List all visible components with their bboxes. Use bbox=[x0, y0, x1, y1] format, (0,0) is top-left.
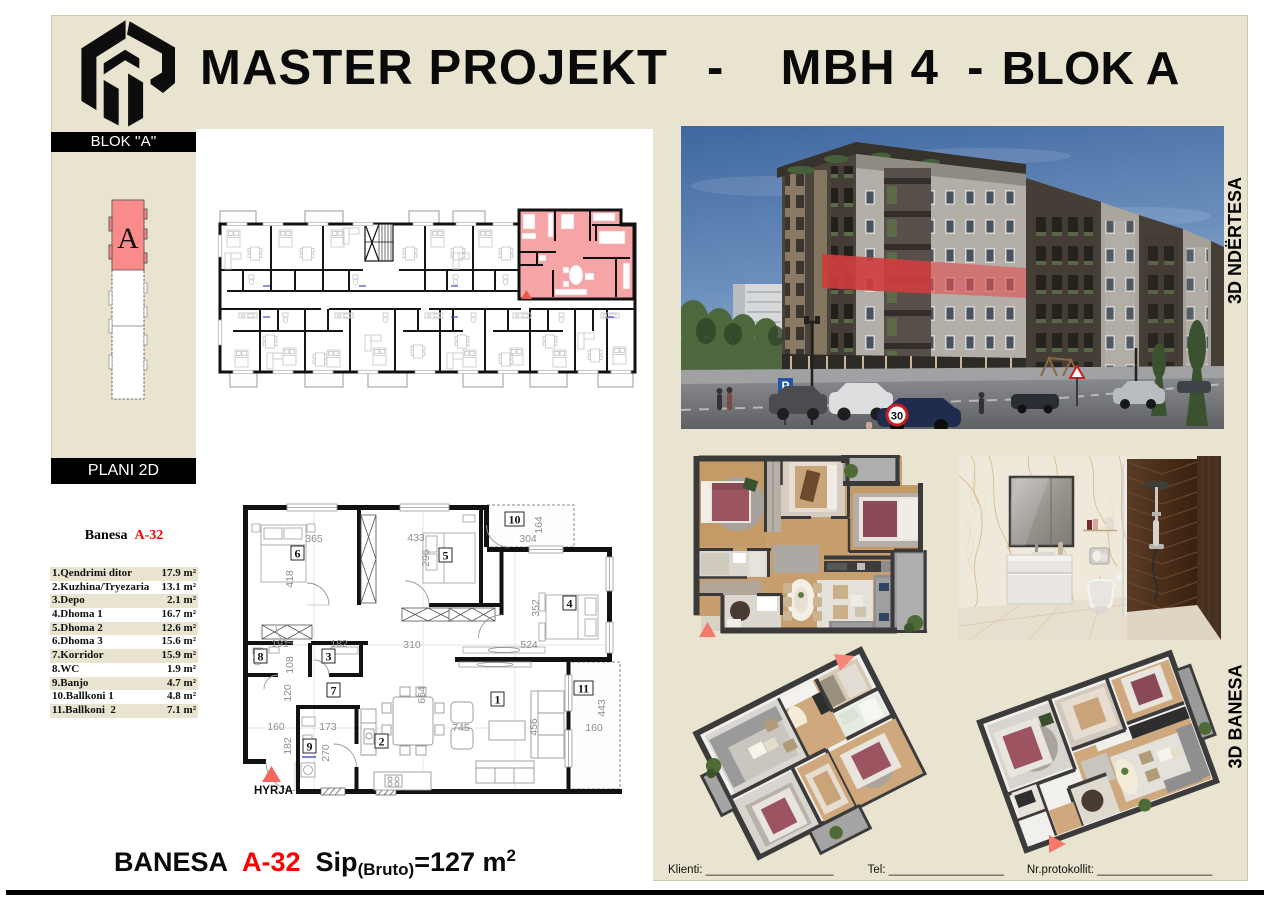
svg-text:433: 433 bbox=[407, 532, 425, 544]
svg-text:4: 4 bbox=[567, 597, 573, 611]
svg-text:296: 296 bbox=[420, 549, 432, 567]
svg-text:664: 664 bbox=[416, 686, 428, 704]
svg-text:6: 6 bbox=[295, 547, 301, 561]
svg-text:443: 443 bbox=[596, 699, 608, 717]
svg-text:160: 160 bbox=[267, 721, 285, 733]
svg-text:456: 456 bbox=[528, 718, 540, 736]
svg-text:5: 5 bbox=[443, 549, 449, 563]
svg-text:8: 8 bbox=[258, 650, 264, 664]
svg-text:304: 304 bbox=[519, 533, 537, 545]
svg-text:164: 164 bbox=[533, 516, 545, 534]
svg-text:11: 11 bbox=[578, 682, 589, 696]
svg-text:9: 9 bbox=[307, 740, 313, 754]
svg-text:270: 270 bbox=[320, 744, 332, 762]
svg-text:365: 365 bbox=[305, 533, 323, 545]
svg-text:182: 182 bbox=[330, 638, 348, 650]
svg-text:30: 30 bbox=[891, 411, 903, 423]
svg-text:2: 2 bbox=[379, 735, 385, 749]
svg-text:173: 173 bbox=[319, 721, 337, 733]
svg-text:160: 160 bbox=[585, 722, 603, 734]
svg-text:524: 524 bbox=[520, 639, 538, 651]
svg-text:7: 7 bbox=[331, 684, 337, 698]
svg-text:108: 108 bbox=[284, 656, 296, 674]
svg-text:10: 10 bbox=[509, 513, 521, 527]
svg-text:182: 182 bbox=[282, 737, 294, 755]
svg-text:418: 418 bbox=[284, 570, 296, 588]
svg-text:3: 3 bbox=[326, 650, 332, 664]
svg-text:1: 1 bbox=[495, 693, 501, 707]
svg-text:120: 120 bbox=[282, 684, 294, 702]
svg-text:745: 745 bbox=[452, 722, 470, 734]
svg-text:A: A bbox=[117, 222, 139, 255]
svg-text:191: 191 bbox=[271, 638, 289, 650]
svg-text:310: 310 bbox=[403, 639, 421, 651]
svg-text:HYRJA: HYRJA bbox=[254, 785, 293, 797]
svg-text:352: 352 bbox=[530, 599, 542, 617]
